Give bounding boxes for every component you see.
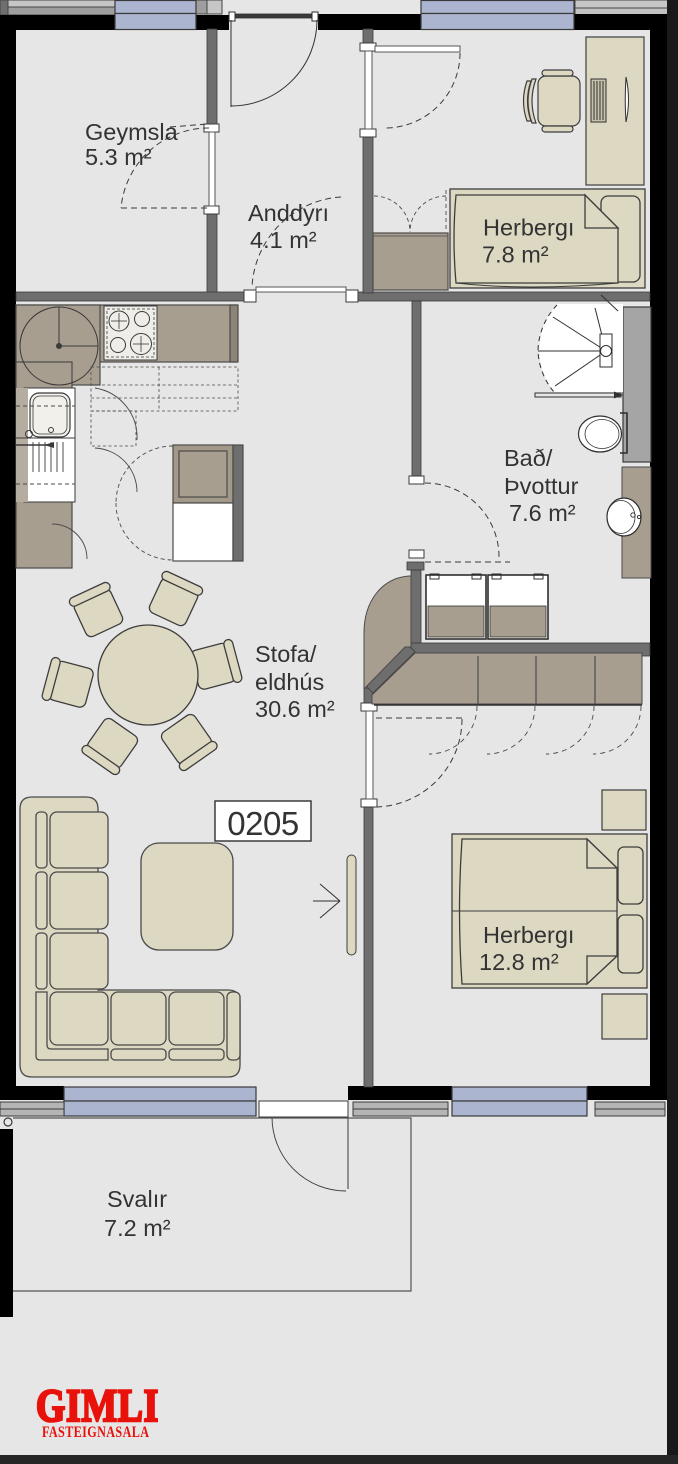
svg-text:Geymsla: Geymsla xyxy=(85,119,179,145)
svg-text:Bað/: Bað/ xyxy=(504,445,553,471)
svg-text:7.2 m²: 7.2 m² xyxy=(104,1215,171,1241)
svg-text:12.8 m²: 12.8 m² xyxy=(479,949,559,975)
svg-text:Stofa/: Stofa/ xyxy=(255,641,317,667)
svg-text:5.3 m²: 5.3 m² xyxy=(85,144,152,170)
svg-text:7.8 m²: 7.8 m² xyxy=(482,242,549,268)
svg-text:Herbergı: Herbergı xyxy=(483,215,574,241)
svg-text:0205: 0205 xyxy=(227,805,298,842)
svg-text:Herbergı: Herbergı xyxy=(483,922,574,948)
svg-text:FASTEIGNASALA: FASTEIGNASALA xyxy=(42,1423,150,1441)
svg-text:Anddyrı: Anddyrı xyxy=(248,200,329,226)
svg-text:Þvottur: Þvottur xyxy=(504,473,579,499)
svg-text:4.1 m²: 4.1 m² xyxy=(250,227,317,253)
svg-text:Svalır: Svalır xyxy=(107,1186,167,1212)
svg-text:7.6 m²: 7.6 m² xyxy=(509,500,576,526)
svg-text:30.6 m²: 30.6 m² xyxy=(255,696,335,722)
svg-text:eldhús: eldhús xyxy=(255,669,324,695)
